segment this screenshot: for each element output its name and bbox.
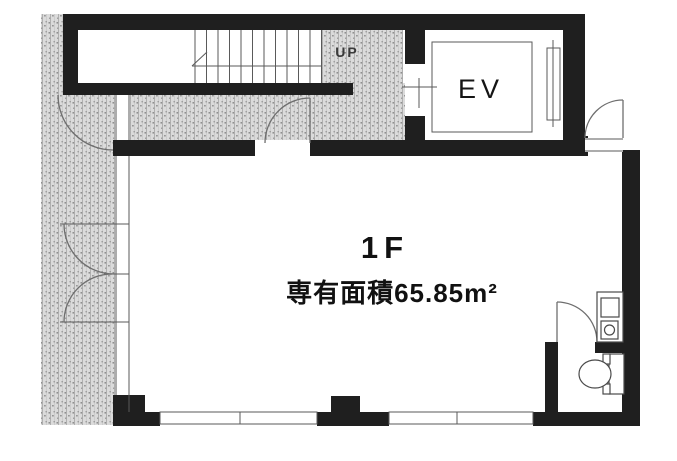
stairwell-floor: [78, 30, 322, 83]
wall-bottom-under-toilet: [533, 412, 640, 426]
left-walkway-top: [41, 14, 63, 95]
wall-east-upper: [563, 14, 585, 145]
wall-bottom-left-band: [113, 412, 160, 426]
wall-east-lower: [622, 150, 640, 426]
stair-entry-area: [322, 30, 403, 83]
wall-ev-left-upper: [405, 30, 425, 64]
toilet-bowl-icon: [579, 360, 611, 388]
window-south-left: [160, 412, 317, 424]
floor-plan-drawing: UP EV 1F 専有面積65.85m²: [0, 0, 677, 461]
wall-stair-bottom: [63, 83, 353, 95]
wall-bottom-mid-pier: [331, 396, 360, 426]
floor-plan: UP EV 1F 専有面積65.85m²: [0, 0, 677, 461]
wall-stair-left: [63, 14, 78, 95]
toilet-door-arc: [557, 302, 597, 342]
area-label: 専有面積65.85m²: [286, 278, 498, 308]
elevator-label: EV: [458, 74, 504, 104]
window-south-right: [389, 412, 533, 424]
stair-entry-passage: [353, 83, 405, 140]
left-walkway: [41, 95, 115, 425]
wall-room-top-left: [113, 140, 255, 156]
wall-toilet-left: [545, 342, 558, 412]
wall-toilet-top-right: [595, 342, 622, 353]
wash-basin-unit: [597, 292, 623, 342]
wall-top: [63, 14, 585, 30]
corridor-doorway-to-walkway: [115, 95, 130, 140]
entrance-threshold: [585, 138, 623, 152]
basin-icon: [605, 325, 615, 335]
corridor: [41, 95, 405, 140]
wall-room-top-right: [310, 140, 588, 156]
toilet-room: [579, 354, 624, 394]
wall-ev-left-lower: [405, 116, 425, 142]
stairs-up-label: UP: [335, 44, 358, 60]
entrance-door-arc: [585, 100, 623, 138]
floor-label: 1F: [361, 230, 409, 265]
